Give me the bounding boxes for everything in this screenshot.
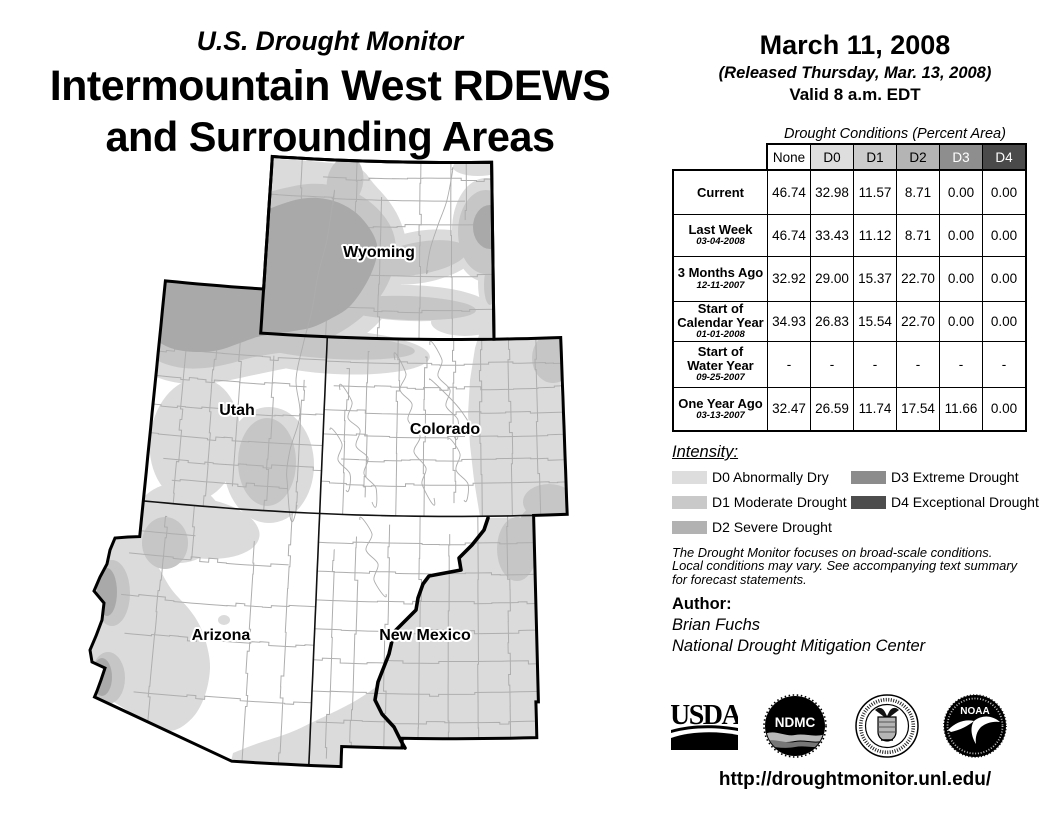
svg-text:Colorado: Colorado: [410, 421, 480, 438]
svg-text:Arizona: Arizona: [192, 627, 251, 644]
svg-text:Wyoming: Wyoming: [343, 244, 415, 261]
svg-text:NOAA: NOAA: [960, 706, 989, 717]
svg-text:NDMC: NDMC: [775, 715, 816, 730]
svg-text:Utah: Utah: [219, 402, 255, 419]
svg-text:New Mexico: New Mexico: [379, 627, 471, 644]
